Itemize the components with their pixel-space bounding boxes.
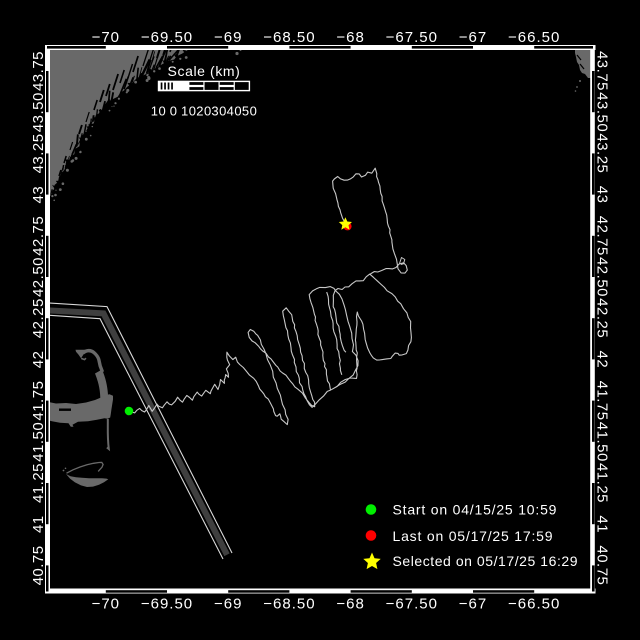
svg-text:50: 50: [242, 104, 258, 119]
svg-text:41: 41: [593, 515, 610, 533]
svg-text:Selected on 05/17/25 16:29: Selected on 05/17/25 16:29: [393, 553, 579, 569]
svg-text:42.75: 42.75: [30, 216, 47, 256]
svg-text:42.50: 42.50: [30, 257, 47, 297]
svg-text:−68.50: −68.50: [263, 29, 315, 46]
svg-text:43.25: 43.25: [30, 133, 47, 173]
svg-text:41.50: 41.50: [593, 422, 610, 462]
svg-text:−70: −70: [92, 596, 120, 613]
svg-text:42.75: 42.75: [593, 216, 610, 256]
svg-text:40: 40: [227, 104, 243, 119]
svg-text:−67: −67: [459, 29, 487, 46]
svg-text:−69: −69: [214, 596, 242, 613]
svg-text:−69: −69: [214, 29, 242, 46]
svg-text:43.75: 43.75: [30, 51, 47, 91]
svg-text:41.50: 41.50: [30, 422, 47, 462]
svg-text:0: 0: [170, 104, 178, 119]
svg-text:43.25: 43.25: [593, 133, 610, 173]
svg-text:42: 42: [593, 351, 610, 369]
svg-text:41.25: 41.25: [593, 463, 610, 503]
svg-text:43.50: 43.50: [30, 92, 47, 132]
svg-text:−69.50: −69.50: [141, 29, 193, 46]
svg-text:−67.50: −67.50: [386, 596, 438, 613]
svg-text:−68: −68: [336, 29, 364, 46]
svg-text:10: 10: [181, 104, 197, 119]
svg-text:41.75: 41.75: [30, 381, 47, 421]
svg-text:−67.50: −67.50: [386, 29, 438, 46]
svg-text:−67: −67: [459, 596, 487, 613]
svg-text:−68.50: −68.50: [263, 596, 315, 613]
svg-text:−69.50: −69.50: [141, 596, 193, 613]
svg-text:30: 30: [211, 104, 227, 119]
svg-text:41: 41: [30, 515, 47, 533]
svg-text:−70: −70: [92, 29, 120, 46]
svg-text:10: 10: [151, 104, 167, 119]
svg-text:40.75: 40.75: [593, 545, 610, 585]
svg-text:42.50: 42.50: [593, 257, 610, 297]
svg-text:42: 42: [30, 351, 47, 369]
svg-text:Start on 04/15/25 10:59: Start on 04/15/25 10:59: [393, 502, 558, 518]
svg-text:−66.50: −66.50: [508, 29, 560, 46]
svg-text:41.75: 41.75: [593, 381, 610, 421]
svg-text:40.75: 40.75: [30, 545, 47, 585]
svg-text:−68: −68: [336, 596, 364, 613]
svg-text:41.25: 41.25: [30, 463, 47, 503]
svg-text:42.25: 42.25: [593, 298, 610, 338]
svg-text:43.50: 43.50: [593, 92, 610, 132]
svg-text:−66.50: −66.50: [508, 596, 560, 613]
svg-text:Last on 05/17/25 17:59: Last on 05/17/25 17:59: [393, 528, 554, 544]
svg-text:20: 20: [196, 104, 212, 119]
svg-text:43.75: 43.75: [593, 51, 610, 91]
svg-text:43: 43: [593, 186, 610, 204]
svg-text:Scale (km): Scale (km): [168, 63, 241, 79]
svg-text:43: 43: [30, 186, 47, 204]
svg-text:42.25: 42.25: [30, 298, 47, 338]
